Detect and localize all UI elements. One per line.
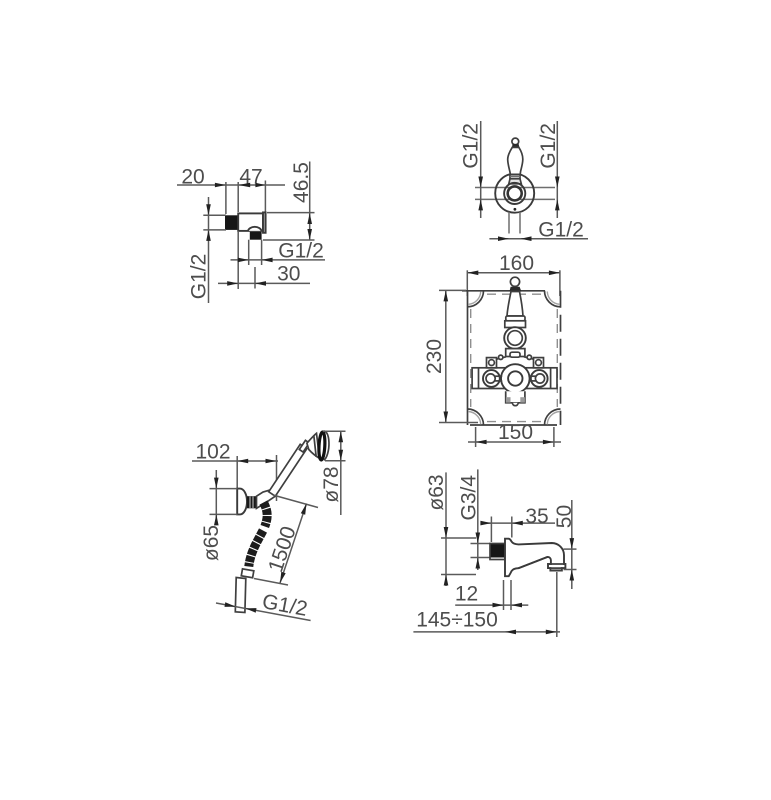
svg-text:G3/4: G3/4: [457, 475, 480, 521]
svg-text:ø63: ø63: [425, 474, 448, 510]
svg-text:G1/2: G1/2: [460, 123, 483, 169]
svg-text:160: 160: [499, 252, 534, 275]
svg-text:230: 230: [423, 339, 446, 374]
svg-text:G1/2: G1/2: [278, 240, 324, 263]
svg-text:150: 150: [498, 421, 533, 444]
svg-text:12: 12: [455, 583, 478, 606]
svg-text:30: 30: [277, 263, 300, 286]
svg-text:102: 102: [195, 441, 230, 464]
svg-text:35: 35: [525, 505, 548, 528]
svg-text:ø78: ø78: [320, 466, 343, 502]
svg-text:G1/2: G1/2: [537, 123, 560, 169]
svg-text:145÷150: 145÷150: [416, 609, 498, 632]
svg-text:G1/2: G1/2: [188, 254, 211, 300]
svg-text:G1/2: G1/2: [538, 219, 584, 242]
svg-text:ø65: ø65: [200, 525, 223, 561]
